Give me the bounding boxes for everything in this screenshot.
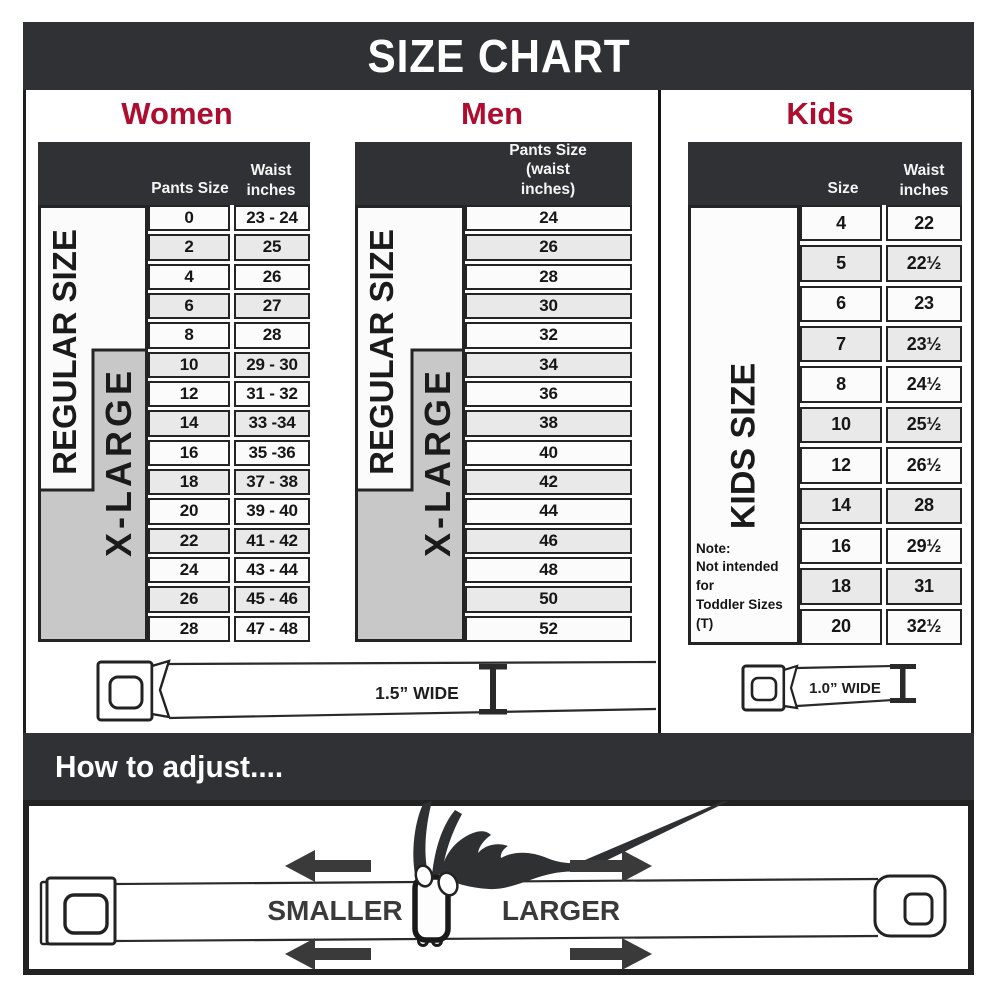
men-xlarge-label: X-LARGE [417, 367, 458, 557]
width-measure-icon [890, 664, 916, 703]
size-cell: 28 [465, 264, 632, 290]
kids-belt-width-label: 1.0” WIDE [809, 680, 881, 697]
seatbelt-buckle-icon [41, 878, 115, 944]
size-cell: 32 [465, 322, 632, 348]
size-cell: 12 [800, 447, 882, 483]
waist-cell: 24½ [886, 366, 962, 402]
women-xlarge-label: X-LARGE [98, 367, 139, 557]
size-cell: 52 [465, 616, 632, 642]
size-cell: 10 [800, 407, 882, 443]
waist-cell: 26 [234, 264, 310, 290]
kids-size-table: 422522½623723½824½1025½1226½14281629½183… [800, 205, 962, 645]
size-cell: 42 [465, 469, 632, 495]
seatbelt-buckle-icon [98, 661, 169, 720]
women-regular-label: REGULAR SIZE [46, 229, 83, 475]
kids-section-title: Kids [786, 96, 853, 132]
kids-section-divider [658, 90, 661, 733]
size-cell: 26 [148, 586, 230, 612]
waist-cell: 29 - 30 [234, 352, 310, 378]
size-cell: 8 [800, 366, 882, 402]
waist-cell: 25½ [886, 407, 962, 443]
men-regular-label: REGULAR SIZE [363, 229, 400, 475]
larger-label: LARGER [502, 895, 620, 926]
belt-tip-icon [875, 876, 945, 936]
smaller-label: SMALLER [267, 895, 402, 926]
waist-cell: 22 [886, 205, 962, 241]
waist-cell: 28 [234, 322, 310, 348]
size-cell: 20 [800, 609, 882, 645]
size-cell: 40 [465, 440, 632, 466]
size-cell: 22 [148, 528, 230, 554]
women-col2-header: Waist inches [246, 161, 295, 200]
size-cell: 46 [465, 528, 632, 554]
kids-size-label: KIDS SIZE [725, 363, 764, 529]
women-section-title: Women [121, 96, 232, 132]
size-cell: 38 [465, 410, 632, 436]
size-cell: 5 [800, 245, 882, 281]
waist-cell: 29½ [886, 528, 962, 564]
size-cell: 6 [800, 286, 882, 322]
size-cell: 50 [465, 586, 632, 612]
size-cell: 36 [465, 381, 632, 407]
size-cell: 14 [800, 488, 882, 524]
men-table-header: Pants Size (waist inches) [355, 142, 632, 205]
size-cell: 2 [148, 234, 230, 260]
men-section-title: Men [461, 96, 523, 132]
size-cell: 20 [148, 498, 230, 524]
waist-cell: 33 -34 [234, 410, 310, 436]
adjustment-illustration: SMALLER LARGER [23, 800, 974, 975]
how-to-adjust-banner: How to adjust.... [23, 733, 974, 800]
waist-cell: 41 - 42 [234, 528, 310, 554]
size-cell: 16 [800, 528, 882, 564]
size-cell: 44 [465, 498, 632, 524]
waist-cell: 23 - 24 [234, 205, 310, 231]
kids-note-line: Not intended for [696, 558, 797, 596]
size-cell: 7 [800, 326, 882, 362]
waist-cell: 45 - 46 [234, 586, 310, 612]
size-cell: 26 [465, 234, 632, 260]
size-chart-page: SIZE CHART Women Men Kids Pants Size Wai… [0, 0, 1000, 1000]
kids-col1-header: Size [827, 180, 858, 198]
kids-size-region: KIDS SIZE Note: Not intended for Toddler… [688, 205, 800, 645]
women-size-table: 023 - 242254266278281029 - 301231 - 3214… [148, 205, 310, 642]
size-chart-banner: SIZE CHART [23, 22, 974, 90]
size-cell: 6 [148, 293, 230, 319]
size-cell: 34 [465, 352, 632, 378]
men-col-header: Pants Size (waist inches) [506, 141, 590, 199]
men-size-table: 242628303234363840424446485052 [465, 205, 632, 642]
waist-cell: 31 - 32 [234, 381, 310, 407]
kids-note-line: Toddler Sizes (T) [696, 596, 797, 634]
women-size-range-labels: REGULAR SIZE X-LARGE [38, 205, 148, 642]
width-measure-icon [479, 664, 507, 715]
size-cell: 48 [465, 557, 632, 583]
size-cell: 18 [148, 469, 230, 495]
size-cell: 8 [148, 322, 230, 348]
kids-table-header: Size Waist inches [688, 142, 962, 205]
size-cell: 4 [800, 205, 882, 241]
adult-belt-width-label: 1.5” WIDE [375, 683, 459, 703]
size-cell: 4 [148, 264, 230, 290]
kids-belt-width-diagram: 1.0” WIDE [735, 652, 945, 732]
waist-cell: 35 -36 [234, 440, 310, 466]
kids-note: Note: Not intended for Toddler Sizes (T) [696, 540, 797, 634]
men-size-range-labels: REGULAR SIZE X-LARGE [355, 205, 465, 642]
size-cell: 0 [148, 205, 230, 231]
women-col1-header: Pants Size [151, 180, 229, 198]
waist-cell: 37 - 38 [234, 469, 310, 495]
waist-cell: 31 [886, 568, 962, 604]
adult-belt-width-diagram: 1.5” WIDE [90, 652, 660, 732]
size-cell: 10 [148, 352, 230, 378]
waist-cell: 39 - 40 [234, 498, 310, 524]
women-table-header: Pants Size Waist inches [38, 142, 310, 205]
seatbelt-buckle-icon [743, 666, 797, 710]
size-cell: 24 [465, 205, 632, 231]
waist-cell: 32½ [886, 609, 962, 645]
waist-cell: 43 - 44 [234, 557, 310, 583]
page-title: SIZE CHART [367, 29, 630, 83]
waist-cell: 23 [886, 286, 962, 322]
waist-cell: 26½ [886, 447, 962, 483]
size-cell: 28 [148, 616, 230, 642]
waist-cell: 47 - 48 [234, 616, 310, 642]
how-to-adjust-title: How to adjust.... [55, 749, 283, 785]
kids-note-line: Note: [696, 540, 797, 559]
waist-cell: 25 [234, 234, 310, 260]
size-cell: 14 [148, 410, 230, 436]
size-cell: 30 [465, 293, 632, 319]
waist-cell: 22½ [886, 245, 962, 281]
size-cell: 18 [800, 568, 882, 604]
kids-col2-header: Waist inches [899, 161, 948, 200]
waist-cell: 27 [234, 293, 310, 319]
size-cell: 12 [148, 381, 230, 407]
waist-cell: 23½ [886, 326, 962, 362]
waist-cell: 28 [886, 488, 962, 524]
size-cell: 24 [148, 557, 230, 583]
size-cell: 16 [148, 440, 230, 466]
